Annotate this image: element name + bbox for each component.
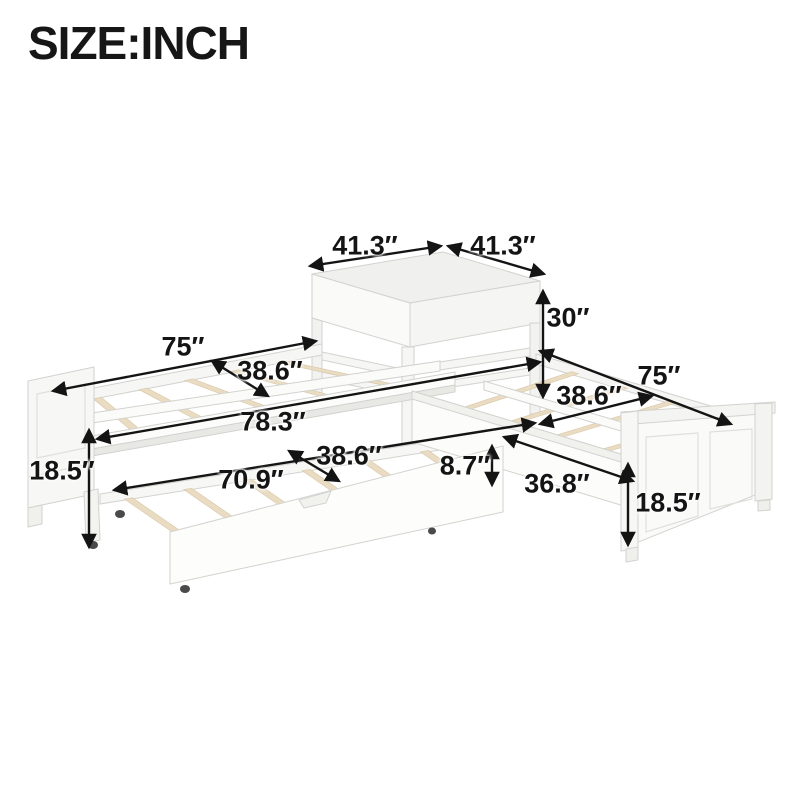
dim-label-footboard-width: 36.8″ [524,469,589,500]
right-bed-footboard [621,402,775,562]
dim-label-table-height: 30″ [547,303,590,334]
dim-label-left-bed-height: 18.5″ [29,456,94,487]
dim-label-trundle-height: 8.7″ [440,451,490,482]
dim-label-overall-length: 78.3″ [240,407,305,438]
dim-label-table-top-left: 41.3″ [332,231,397,262]
dim-label-right-bed-width: 38.6″ [556,381,621,412]
dim-label-trundle-width: 38.6″ [316,441,381,472]
product-dimension-diagram: SIZE:INCH 41.3″ 41.3″ 30″ 75″ 38.6″ 78.3… [0,0,800,800]
page-title: SIZE:INCH [28,16,249,70]
dim-label-right-bed-height: 18.5″ [635,488,700,519]
bed-diagram-canvas [0,0,800,800]
dim-label-left-bed-length: 75″ [162,332,205,363]
dim-label-trundle-length: 70.9″ [218,465,283,496]
dim-label-table-top-right: 41.3″ [470,231,535,262]
dim-label-left-bed-width: 38.6″ [237,356,302,387]
dim-label-right-bed-length: 75″ [638,361,681,392]
